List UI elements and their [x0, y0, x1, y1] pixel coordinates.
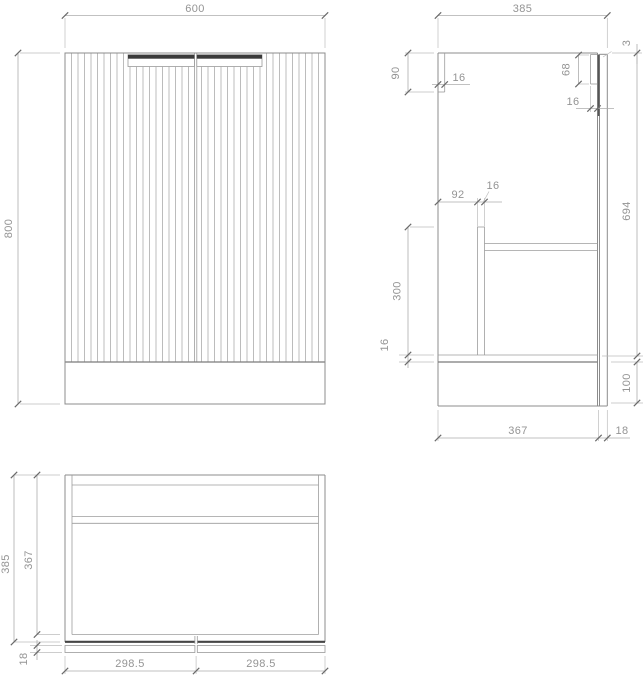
dim-side-top-gap-group: 3 — [603, 40, 642, 64]
right-handle-pull-bar — [197, 55, 262, 59]
dim-side-bottom-panel-thickness: 16 — [379, 338, 391, 351]
dim-side-body-depth-group: 367 18 — [435, 410, 630, 441]
dim-plan-door-right-width: 298.5 — [246, 658, 276, 670]
dim-side-carcass-height: 694 — [621, 201, 633, 221]
dim-side-back-rail-height: 90 — [390, 66, 402, 79]
dim-plan-door-thickness-group: 18 — [18, 640, 62, 666]
side-view: 385 3 694 100 — [379, 3, 643, 441]
front-view: 600 800 — [3, 3, 328, 407]
dim-front-height-group: 800 — [3, 50, 60, 407]
dim-side-divider-setback: 92 — [451, 189, 464, 201]
dim-side-door-thickness: 18 — [615, 425, 628, 437]
dim-side-plinth-height-group: 100 — [611, 359, 643, 406]
flute-lines — [72, 53, 319, 361]
dim-side-carcass-height-group: 694 — [602, 55, 643, 360]
dim-side-back-rail-height-group: 90 — [390, 50, 434, 95]
dim-plan-body-depth-group: 367 — [23, 472, 60, 638]
dim-side-depth: 385 — [513, 3, 533, 15]
dim-side-divider-setback-group: 92 16 — [435, 180, 502, 227]
dim-plan-door-left-width: 298.5 — [115, 658, 145, 670]
dim-front-width: 600 — [185, 3, 205, 15]
dim-plan-door-thickness: 18 — [18, 652, 30, 665]
plan-left-door — [65, 646, 195, 653]
dim-side-body-depth: 367 — [508, 425, 528, 437]
dim-side-top-gap: 3 — [621, 40, 633, 47]
dim-front-width-group: 600 — [62, 3, 328, 48]
dim-side-depth-group: 385 — [435, 3, 611, 48]
dim-side-front-rail-height-group: 68 — [561, 52, 590, 87]
left-handle-pull-bar — [128, 55, 194, 59]
plan-view: 385 367 18 298.5 29 — [0, 472, 328, 674]
drawing-sheet: 600 800 — [0, 0, 643, 680]
dim-side-front-rail-height: 68 — [561, 63, 573, 76]
dim-side-plinth-height: 100 — [621, 373, 633, 393]
drawing-canvas: 600 800 — [0, 0, 643, 680]
dim-plan-door-widths-group: 298.5 298.5 — [62, 656, 328, 674]
dim-plan-depth: 385 — [0, 554, 12, 574]
dim-side-back-rail-thickness: 16 — [452, 72, 465, 84]
dim-side-front-rail-thickness: 16 — [566, 96, 579, 108]
dim-plan-body-depth: 367 — [23, 550, 35, 570]
dim-front-height: 800 — [3, 219, 15, 239]
dim-side-divider-height: 300 — [392, 281, 404, 301]
plan-right-door — [197, 646, 325, 653]
dim-side-divider-height-group: 300 16 — [379, 224, 434, 368]
dim-side-divider-thickness: 16 — [486, 180, 499, 192]
